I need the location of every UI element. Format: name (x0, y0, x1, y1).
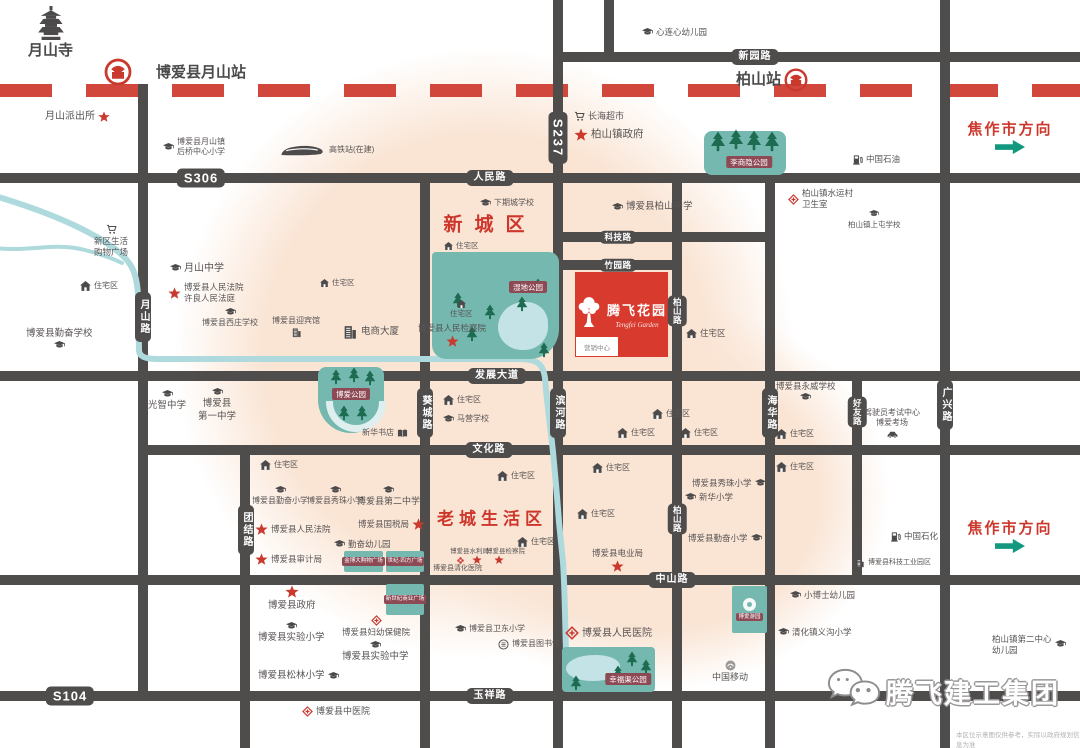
poi-school: 博爱县松林小学 (258, 670, 339, 682)
star-icon (98, 111, 110, 123)
poi-house: 住宅区 (450, 300, 473, 319)
road-团结路 (240, 445, 250, 748)
poi-house: 住宅区 (443, 395, 481, 405)
poi-label: 博爱县国税局 (358, 519, 409, 530)
poi-label: 博爱县政府 (268, 600, 316, 612)
house-icon (776, 429, 787, 439)
school-icon (642, 28, 653, 37)
poi-label: 小博士幼儿园 (804, 590, 855, 601)
school-icon (383, 486, 394, 495)
school-icon (1055, 640, 1066, 649)
direction-label: 焦作市方向 (967, 118, 1052, 139)
school-icon (212, 388, 223, 397)
poi-label: 新华书店 (362, 428, 394, 438)
poi-label: 中国石化 (904, 531, 938, 542)
poi-label: 光智中学 (148, 400, 186, 412)
poi-school: 博爱县西庄学校 (202, 308, 258, 329)
tree-icon (356, 405, 368, 421)
poi-school: 博爱县秀珠小学 (692, 478, 766, 489)
poi-house: 住宅区 (497, 471, 535, 481)
plaza-label: 新世纪商业广场 (384, 595, 427, 603)
poi-railway-logo: 柏山站 (736, 68, 808, 92)
plaza: 金博大购物广场 (344, 551, 383, 572)
poi-building: 博爱县科技工业园区 (855, 558, 931, 568)
poi-label: 博爱县实验小学 (258, 632, 325, 644)
school-icon (869, 210, 879, 219)
poi-book: 新华书店 (362, 428, 408, 438)
poi-label: 博爱县人民医院 (582, 627, 652, 640)
poi-label: 博爱县迎宾馆 (272, 316, 320, 326)
poi-label: 驾驶员考试中心博爱考场 (864, 408, 920, 429)
poi-label: 住宅区 (606, 463, 630, 473)
poi-label: 博爱县科技工业园区 (868, 558, 931, 567)
road-发展大道 (0, 371, 1080, 381)
poi-clinic: 博爱县人民医院 (565, 626, 652, 640)
poi-library: 博爱县图书馆 (498, 639, 560, 650)
fuel-icon (852, 154, 863, 165)
road-月山路 (138, 84, 148, 696)
road-badge: 柏山路 (668, 504, 687, 535)
road-badge: 葵城路 (417, 388, 433, 438)
poi-label: 月山中学 (184, 262, 224, 275)
poi-star: 博爱县人民法院 (255, 523, 331, 536)
poi-label: 博爱县月山站 (156, 63, 246, 83)
poi-pagoda: 月山寺 (28, 6, 73, 61)
poi-railway-logo (104, 58, 132, 86)
poi-label: 柏山站 (736, 70, 781, 90)
park-badge: 幸福渠公园 (605, 673, 651, 685)
poi-label: 长海超市 (588, 111, 624, 123)
school-icon (334, 540, 345, 549)
road-badge: 发展大道 (468, 368, 526, 384)
building-icon (291, 327, 302, 338)
road-badge: 玉祥路 (467, 688, 514, 704)
poi-house: 住宅区 (444, 241, 479, 251)
school-icon (54, 341, 65, 350)
poi-fuel: 中国石化 (890, 531, 938, 542)
tree-icon (516, 296, 528, 312)
railway-logo-icon (104, 58, 132, 86)
road-badge: S104 (46, 687, 94, 706)
poi-label: 新华小学 (699, 492, 733, 503)
wechat-bubbles-icon (826, 664, 882, 719)
cart-icon (574, 111, 585, 122)
house-icon (80, 281, 91, 291)
road-badge: 科技路 (599, 231, 636, 244)
poi-school: 月山中学 (170, 262, 224, 275)
poi-label: 月山寺 (28, 41, 73, 61)
poi-label: 住宅区 (790, 429, 814, 439)
clinic-icon (302, 706, 313, 717)
poi-cart: 新区生活购物广场 (94, 224, 128, 258)
poi-building: 博爱县迎宾馆 (272, 316, 320, 338)
poi-house: 住宅区 (80, 281, 118, 291)
tree-icon (330, 369, 342, 385)
district-label: 新城区 (443, 210, 536, 237)
clinic-icon (565, 626, 579, 640)
tree-icon (364, 370, 376, 386)
poi-label: 勤奋幼儿园 (348, 539, 391, 550)
poi-house: 住宅区 (617, 428, 655, 438)
school-icon (275, 486, 286, 495)
poi-label: 高铁站(在建) (329, 145, 374, 155)
poi-star (494, 555, 504, 565)
poi-label: 博爱县妇幼保健院 (342, 627, 410, 638)
road-葵城路 (420, 173, 430, 748)
poi-school: 心连心幼儿园 (642, 27, 707, 38)
road-badge: S306 (177, 169, 225, 188)
school-icon (443, 415, 454, 424)
direction-label: 焦作市方向 (967, 517, 1052, 538)
poi-label: 下期城学校 (494, 198, 534, 208)
school-icon (480, 199, 491, 208)
poi-house: 住宅区 (260, 460, 298, 470)
poi-label: 月山派出所 (45, 110, 95, 123)
road-柏山路 (672, 173, 682, 748)
star-icon (285, 585, 299, 599)
poi-label: 马营学校 (457, 414, 489, 424)
park-幸福渠公园: 幸福渠公园 (562, 647, 655, 692)
poi-mobile: 中国移动 (712, 660, 748, 684)
poi-clinic: 柏山镇水运村卫生室 (788, 188, 853, 210)
pagoda-icon (36, 6, 66, 40)
poi-school: 光智中学 (148, 390, 186, 413)
school-icon (800, 393, 811, 402)
poi-label: 住宅区 (531, 537, 555, 547)
tengfei-tree-logo-icon (576, 295, 602, 335)
tree-icon (484, 304, 496, 320)
plaza: 博爱游园 (732, 586, 767, 633)
poi-cart: 长海超市 (574, 111, 624, 123)
plaza-label: 博爱游园 (736, 613, 762, 621)
poi-label: 博爱县人民法院 (271, 524, 331, 535)
poi-label: 住宅区 (666, 409, 690, 419)
house-icon (686, 329, 697, 339)
star-icon (494, 555, 504, 565)
poi-building: 电商大厦 (342, 324, 399, 340)
poi-school: 下期城学校 (480, 198, 534, 208)
book-icon (397, 429, 408, 438)
poi-school: 博爱县勤奋小学 (252, 486, 308, 507)
poi-label: 住宅区 (457, 395, 481, 405)
poi-label: 博爱县卫东小学 (469, 624, 525, 634)
poi-school: 博爱县柏山中学 (612, 201, 693, 213)
house-icon (592, 463, 603, 473)
poi-house: 住宅区 (517, 537, 555, 547)
clinic-icon (371, 615, 382, 626)
poi-label: 住宅区 (631, 428, 655, 438)
road-badge: 文化路 (466, 442, 513, 458)
project-name-group: 腾飞花园 Tengfei Garden (607, 300, 667, 329)
poi-label: 博爱县勤奋小学 (688, 533, 748, 544)
poi-house: 住宅区 (577, 509, 615, 519)
poi-label: 博爱县勤奋学校 (26, 328, 93, 340)
poi-label: 住宅区 (694, 428, 718, 438)
poi-label: 博爱县电业局 (592, 548, 643, 559)
tree-icon (728, 129, 744, 150)
tree-icon (746, 130, 762, 151)
poi-label: 住宅区 (332, 278, 355, 288)
poi-label: 博爱县实验中学 (342, 651, 409, 663)
poi-school: 勤奋幼儿园 (334, 539, 391, 550)
poi-label: 住宅区 (456, 241, 479, 251)
house-icon (617, 428, 628, 438)
poi-label: 博爱县勤奋小学 (252, 496, 308, 506)
poi-school: 博爱县第一中学 (198, 388, 236, 423)
house-icon (517, 537, 528, 547)
school-icon (778, 628, 789, 637)
road-badge: 滨河路 (550, 388, 566, 438)
house-icon (497, 471, 508, 481)
poi-house: 住宅区 (680, 428, 718, 438)
house-icon (457, 300, 466, 308)
star-icon (446, 335, 459, 348)
poi-label: 博爱县柏山中学 (626, 201, 693, 213)
road-badge: S237 (549, 112, 568, 164)
clinic-icon (788, 194, 799, 205)
road-badge: 新园路 (732, 49, 779, 65)
poi-label: 博爱县月山镇后桥中心小学 (177, 137, 225, 158)
poi-label: 博爱县清化医院 (433, 564, 482, 573)
poi-label: 博爱县中医院 (316, 706, 370, 718)
poi-label: 心连心幼儿园 (656, 27, 707, 38)
school-icon (225, 308, 236, 317)
poi-label: 博爱县人民法院许良人民法庭 (184, 282, 244, 304)
poi-label: 柏山镇上屯学校 (848, 220, 901, 230)
direction-arrow-icon (995, 539, 1025, 553)
school-icon (755, 479, 766, 488)
tree-icon (626, 651, 638, 667)
park-李商隐公园: 李商隐公园 (704, 131, 786, 175)
school-icon (328, 672, 339, 681)
poi-house: 住宅区 (320, 278, 355, 288)
school-icon (790, 591, 801, 600)
star-icon (611, 560, 624, 573)
poi-train: 高铁站(在建) (280, 143, 374, 157)
road-badge: 中山路 (649, 572, 696, 588)
plaza-label: 世纪·四方广场 (386, 557, 425, 565)
district-label: 老城生活区 (437, 505, 547, 530)
disclaimer-text: 本区位示意图仅供参考，实际以政府规划信息为准 (956, 729, 1080, 748)
poi-label: 博爱县人民检察院 (418, 323, 486, 334)
poi-label: 柏山镇第二中心幼儿园 (992, 634, 1052, 656)
railway-line (0, 84, 1080, 97)
poi-label: 柏山镇水运村卫生室 (802, 188, 853, 210)
brand-name: 腾飞建工集团 (886, 672, 1060, 711)
star-icon (574, 128, 588, 142)
poi-star: 博爱县国税局 (358, 518, 425, 531)
poi-school: 小博士幼儿园 (790, 590, 855, 601)
road-badge: 人民路 (467, 170, 514, 186)
star-icon (168, 287, 181, 300)
poi-label: 博爱县秀珠小学 (692, 478, 752, 489)
poi-house: 住宅区 (776, 462, 814, 472)
school-icon (685, 493, 696, 502)
poi-label: 住宅区 (274, 460, 298, 470)
poi-label: 博爱县秀珠小学 (307, 496, 363, 506)
house-icon (443, 395, 454, 405)
train-icon (280, 143, 326, 157)
road-科技路 (558, 232, 770, 242)
poi-school: 博爱县勤奋学校 (26, 328, 93, 351)
poi-school: 清化镇义沟小学 (778, 627, 852, 638)
building-icon (855, 558, 865, 568)
house-icon (320, 279, 329, 287)
poi-star: 博爱县审计局 (255, 553, 322, 566)
poi-label: 博爱县第一中学 (198, 398, 236, 423)
poi-star: 博爱县人民检察院 (418, 323, 486, 348)
poi-school: 博爱县卫东小学 (455, 624, 525, 634)
direction-arrow-icon (995, 140, 1025, 154)
poi-star: 博爱县人民法院许良人民法庭 (168, 282, 244, 304)
building-icon (342, 324, 358, 340)
house-icon (260, 460, 271, 470)
poi-school: 博爱县勤奋小学 (688, 533, 762, 544)
tree-icon (570, 675, 582, 691)
poi-label: 中国移动 (712, 672, 748, 684)
poi-star: 月山派出所 (45, 110, 110, 123)
poi-house: 住宅区 (652, 409, 690, 419)
park-badge: 博爱公园 (332, 388, 370, 400)
project-name: 腾飞花园 (607, 300, 667, 319)
sales-office-text: 营销中心 (584, 342, 610, 352)
poi-school: 博爱县实验小学 (258, 622, 325, 645)
school-icon (163, 143, 174, 152)
road-中山路 (0, 575, 1080, 585)
poi-school: 博爱县秀珠小学 (307, 486, 363, 507)
car-icon (887, 430, 898, 438)
poi-school: 柏山镇第二中心幼儿园 (992, 634, 1066, 656)
poi-label: 住宅区 (700, 328, 726, 339)
park-badge: 李商隐公园 (726, 156, 772, 168)
tree-icon (348, 367, 360, 383)
poi-label: 博爱县图书馆 (512, 639, 560, 649)
map-canvas: 腾飞花园 Tengfei Garden 营销中心 腾飞建工集团 本区位示意图仅供… (0, 0, 1080, 748)
plaza: 世纪·四方广场 (386, 551, 424, 572)
plaza-logo-icon (743, 598, 756, 611)
school-icon (162, 390, 173, 399)
poi-label: 博爱县检察院 (486, 548, 525, 556)
school-icon (455, 625, 466, 634)
road-人民路-S306 (0, 173, 1080, 183)
road-badge: 广兴路 (937, 380, 953, 430)
star-icon (255, 553, 268, 566)
poi-label: 中国石油 (866, 154, 900, 165)
plaza-label: 金博大购物广场 (342, 557, 385, 565)
poi-house: 住宅区 (686, 328, 726, 339)
road-广兴路 (940, 0, 950, 748)
poi-label: 柏山镇政府 (591, 128, 644, 142)
cart-icon (106, 224, 117, 235)
poi-label: 电商大厦 (361, 326, 399, 338)
poi-school: 新华小学 (685, 492, 733, 503)
poi-label: 博爱县清化医院 (433, 564, 482, 573)
park-badge: 湿地公园 (509, 281, 547, 293)
poi-label: 住宅区 (450, 309, 473, 319)
house-icon (776, 462, 787, 472)
poi-label: 博爱县检察院 (486, 548, 525, 556)
house-icon (577, 509, 588, 519)
poi-star: 柏山镇政府 (574, 128, 644, 142)
poi-label: 住宅区 (511, 471, 535, 481)
tree-icon (710, 131, 726, 152)
brand-logo: 腾飞建工集团 (826, 664, 1060, 719)
poi-label: 住宅区 (591, 509, 615, 519)
house-icon (680, 428, 691, 438)
poi-school: 柏山镇上屯学校 (848, 210, 901, 229)
poi-fuel: 中国石油 (852, 154, 900, 165)
house-icon (652, 409, 663, 419)
poi-label: 新区生活购物广场 (94, 236, 128, 258)
poi-clinic: 博爱县中医院 (302, 706, 370, 718)
school-icon (751, 534, 762, 543)
poi-label: 住宅区 (790, 462, 814, 472)
star-icon (412, 518, 425, 531)
house-icon (444, 242, 453, 250)
poi-label: 博爱县第二中学 (357, 496, 420, 508)
tree-icon (338, 405, 350, 421)
poi-star: 博爱县电业局 (592, 548, 643, 573)
school-icon (286, 622, 297, 631)
poi-school: 博爱县永威学校 (776, 381, 836, 402)
poi-label: 住宅区 (94, 281, 118, 291)
poi-clinic: 博爱县妇幼保健院 (342, 615, 410, 638)
star-icon (255, 523, 268, 536)
road-badge: 竹园路 (599, 259, 636, 272)
school-icon (370, 641, 381, 650)
plaza: 新世纪商业广场 (386, 584, 424, 615)
poi-label: 博爱县西庄学校 (202, 318, 258, 328)
library-icon (498, 639, 509, 650)
tree-icon (764, 131, 780, 152)
poi-school: 马营学校 (443, 414, 489, 424)
fuel-icon (890, 531, 901, 542)
poi-star: 博爱县政府 (268, 585, 316, 612)
poi-car: 驾驶员考试中心博爱考场 (864, 408, 920, 438)
poi-label: 清化镇义沟小学 (792, 627, 852, 638)
road-badge: 月山路 (135, 292, 151, 342)
poi-label: 博爱县月山站 (156, 63, 246, 83)
tree-icon (538, 342, 550, 358)
road-海华路 (765, 173, 775, 748)
poi-school: 博爱县月山镇后桥中心小学 (163, 137, 225, 158)
school-icon (330, 486, 341, 495)
poi-label: 博爱县松林小学 (258, 670, 325, 682)
road-badge: 柏山路 (668, 296, 687, 327)
park-博爱公园: 博爱公园 (318, 367, 384, 433)
poi-house: 住宅区 (776, 429, 814, 439)
school-icon (170, 264, 181, 273)
road-北支路 (604, 0, 614, 57)
school-icon (612, 203, 623, 212)
poi-house: 住宅区 (592, 463, 630, 473)
poi-label: 博爱县永威学校 (776, 381, 836, 392)
road-新园路 (558, 52, 1080, 62)
poi-school: 博爱县第二中学 (357, 486, 420, 508)
poi-label: 博爱县审计局 (271, 554, 322, 565)
mobile-icon (725, 660, 736, 671)
railway-logo-icon (784, 68, 808, 92)
sales-office-label: 营销中心 (576, 337, 618, 356)
road-badge: 团结路 (238, 505, 254, 555)
project-name-en: Tengfei Garden (607, 321, 667, 329)
poi-school: 博爱县实验中学 (342, 641, 409, 664)
